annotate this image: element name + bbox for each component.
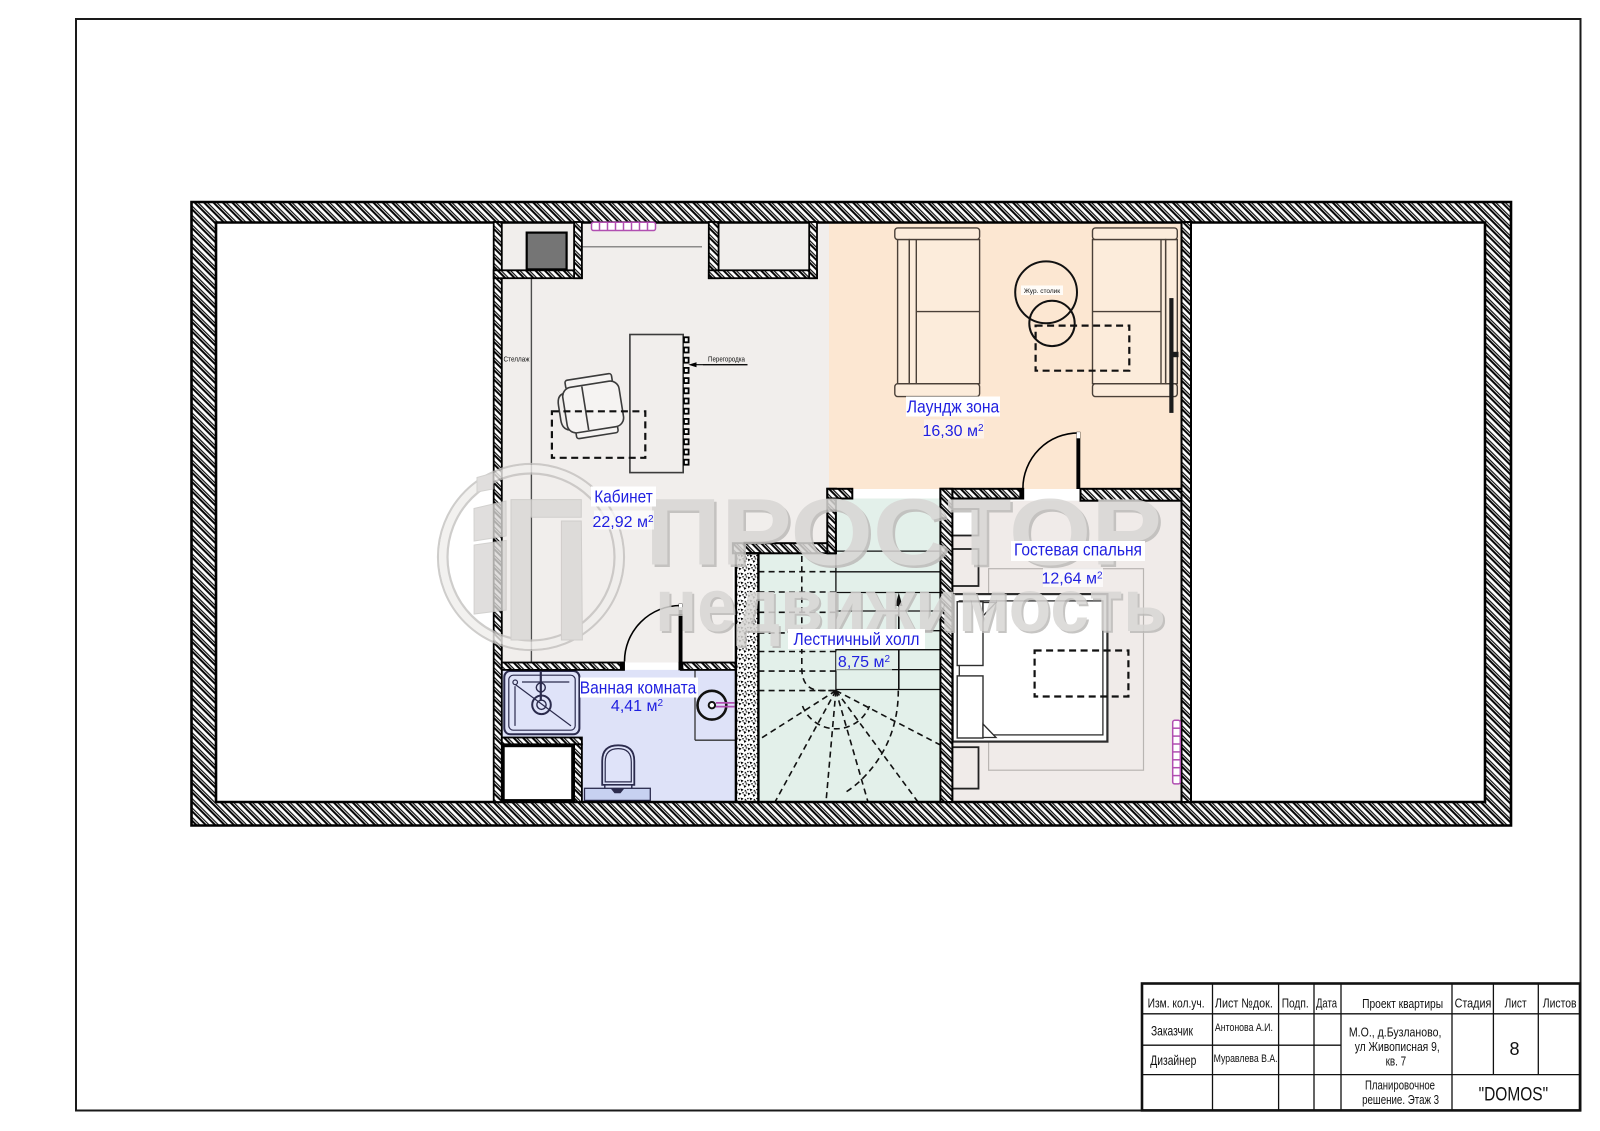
svg-text:Планировочное: Планировочное xyxy=(1365,1077,1435,1092)
svg-text:Стадия: Стадия xyxy=(1455,995,1492,1010)
svg-text:Изм. кол.уч.: Изм. кол.уч. xyxy=(1148,995,1205,1010)
svg-text:Лаундж зона: Лаундж зона xyxy=(907,397,1000,417)
svg-text:М.О., д.Бузланово,: М.О., д.Бузланово, xyxy=(1349,1024,1442,1039)
svg-text:Антонова А.И.: Антонова А.И. xyxy=(1215,1022,1273,1034)
svg-text:Дизайнер: Дизайнер xyxy=(1150,1052,1196,1068)
svg-text:Лестничный холл: Лестничный холл xyxy=(794,629,920,649)
svg-text:8: 8 xyxy=(1510,1039,1520,1059)
svg-text:"DOMOS": "DOMOS" xyxy=(1479,1085,1549,1106)
svg-text:Стеллаж: Стеллаж xyxy=(504,357,530,364)
svg-text:12,64 м2: 12,64 м2 xyxy=(1041,571,1102,588)
svg-text:ул Живописная 9,: ул Живописная 9, xyxy=(1355,1039,1440,1054)
svg-text:Лист: Лист xyxy=(1505,995,1527,1010)
svg-text:Проект квартиры: Проект квартиры xyxy=(1362,996,1443,1011)
svg-text:8,75 м2: 8,75 м2 xyxy=(838,654,891,671)
svg-text:4,41 м2: 4,41 м2 xyxy=(611,698,664,715)
svg-text:16,30 м2: 16,30 м2 xyxy=(922,423,983,440)
svg-text:Ванная комната: Ванная комната xyxy=(580,678,697,698)
svg-text:Дата: Дата xyxy=(1316,995,1338,1010)
svg-text:Лист №док.: Лист №док. xyxy=(1215,995,1273,1010)
svg-text:Муравлева В.А.: Муравлева В.А. xyxy=(1214,1053,1278,1065)
svg-text:22,92 м2: 22,92 м2 xyxy=(592,514,653,531)
svg-text:Кабинет: Кабинет xyxy=(594,487,653,507)
svg-text:Подп.: Подп. xyxy=(1282,995,1309,1010)
svg-text:Жур. столик: Жур. столик xyxy=(1024,288,1060,295)
svg-text:Листов: Листов xyxy=(1543,995,1577,1010)
svg-text:решение. Этаж 3: решение. Этаж 3 xyxy=(1362,1092,1439,1107)
svg-text:Перегородка: Перегородка xyxy=(708,355,746,364)
svg-text:Заказчик: Заказчик xyxy=(1151,1023,1194,1039)
svg-text:кв. 7: кв. 7 xyxy=(1386,1054,1407,1069)
svg-text:Гостевая спальня: Гостевая спальня xyxy=(1014,540,1142,560)
